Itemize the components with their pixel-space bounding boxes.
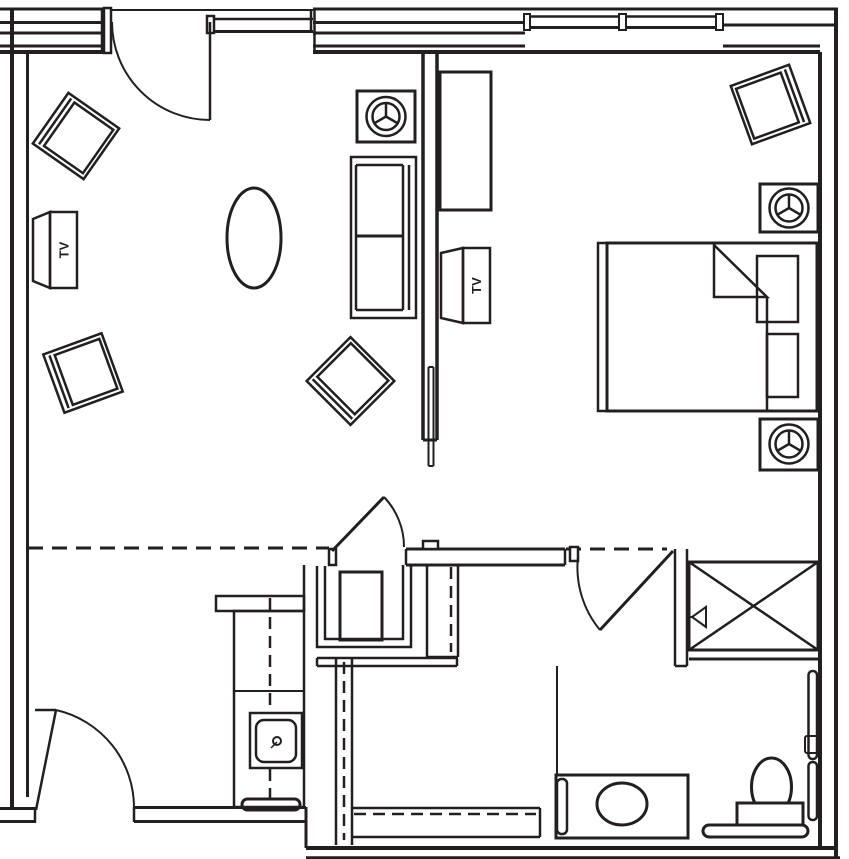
vertical-grab-bar [557,779,567,834]
door-leaf [36,710,56,810]
water-heater-box [340,572,382,640]
left-wall [0,9,35,823]
bedroom-bathroom-door [570,547,673,630]
window-mullion [619,14,626,30]
tv-cabinet-left-wall: TV [33,212,77,288]
top-wall-with-windows [0,9,838,52]
counter-ledge [216,596,304,611]
window-mullion [524,14,530,30]
hall-closet-door [332,497,404,551]
alcove-wall [427,565,458,657]
top-entry-door [104,8,214,120]
top-left-window [0,9,104,52]
door-jamb [104,8,111,53]
bottom-left-entry-door [35,710,134,810]
toilet [737,758,803,832]
table-lamp-icon [770,425,809,464]
right-wall [820,9,836,858]
kitchenette [216,565,304,810]
door-swing-arc [56,710,134,808]
tv-screen-back [441,248,463,323]
door-swing-arc [112,22,210,120]
armchair-top-left [33,93,119,179]
door-swing-arc [384,497,404,547]
bathroom [317,658,821,845]
oval-coffee-table [227,188,281,288]
pillow [757,256,798,322]
x-marked-closet [675,549,818,666]
door-swing-arc [577,557,600,630]
kitchen-sink [250,713,302,768]
armchair-mid-left [43,333,122,412]
top-middle-window [214,10,313,32]
top-center-window-triple [524,14,723,30]
nightstand-upper [760,184,818,232]
accent-chair-rotated [307,337,395,425]
bathroom-top-wall [317,658,457,666]
top-wall-band-right [723,25,838,46]
entry-closet [317,565,411,647]
door-leaf [332,497,384,551]
corner-armchair [731,65,810,144]
bathroom-left-wall [336,658,352,845]
vertical-grab-bar [809,762,818,820]
lamp-table [357,91,415,142]
bathroom-bottom-strip [352,808,540,837]
tv-cabinet-partition: TV [441,248,490,323]
dresser-console [440,72,491,210]
table-lamp-icon [367,97,406,136]
vanity [556,775,688,838]
folded-blanket-corner [714,245,767,297]
table-lamp-icon [770,189,809,228]
direction-triangle-icon [692,607,706,627]
living-area: TV [33,91,416,425]
mattress [607,243,817,411]
horizontal-grab-bar [703,825,808,837]
sofa [351,157,416,318]
door-leaf [600,551,673,630]
door-jamb [570,547,578,561]
pillow [767,334,798,397]
tv-label: TV [57,241,72,258]
tv-screen-back [33,212,50,288]
floor-plan: TV TV [0,0,849,859]
window-mullion [716,14,723,30]
nightstand-lower [760,419,818,470]
partition-wall [423,52,437,466]
bed [598,243,817,411]
bedroom: TV [440,65,818,470]
wall-bump [423,541,438,549]
vertical-grab-bar [809,671,818,759]
tv-label: TV [469,277,484,294]
vanity-sink [597,783,647,825]
